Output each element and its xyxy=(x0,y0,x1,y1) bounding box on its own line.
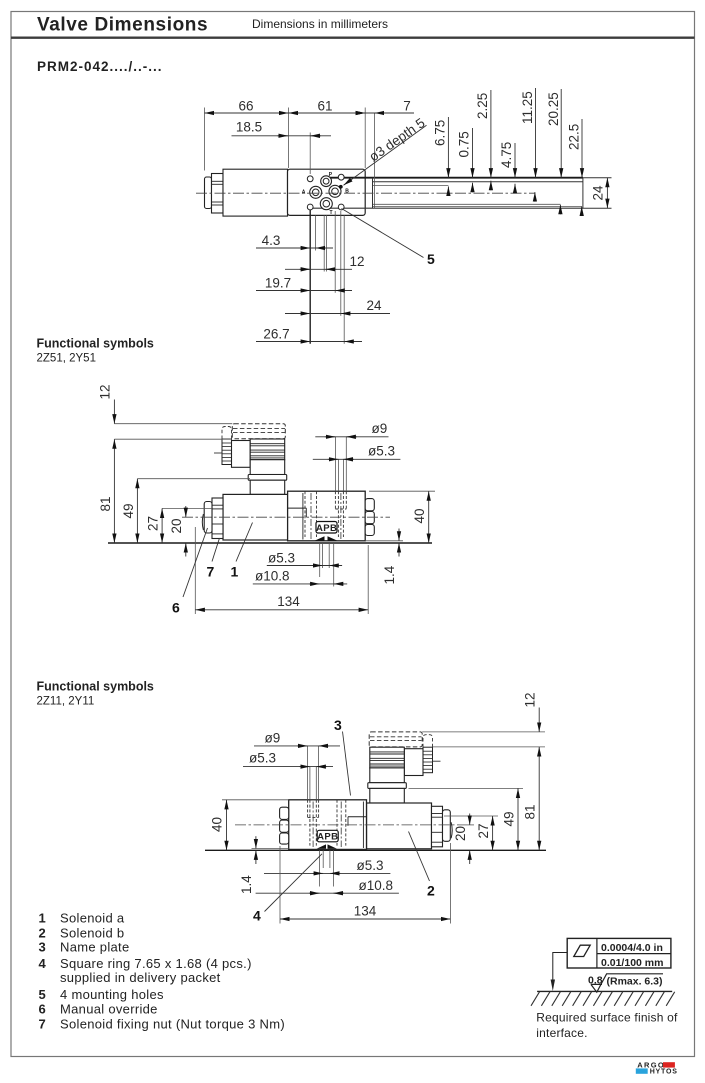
svg-text:supplied in delivery packet: supplied in delivery packet xyxy=(60,970,221,985)
svg-text:B: B xyxy=(345,189,349,195)
svg-text:5: 5 xyxy=(39,987,47,1002)
svg-text:12: 12 xyxy=(349,254,364,269)
svg-text:PRM2-042..../..-...: PRM2-042..../..-... xyxy=(37,59,163,74)
svg-text:Solenoid fixing nut (Nut torqu: Solenoid fixing nut (Nut torque 3 Nm) xyxy=(60,1017,285,1032)
svg-text:2: 2 xyxy=(427,883,435,899)
svg-text:ø3 depth 5: ø3 depth 5 xyxy=(366,115,427,164)
svg-text:20.25: 20.25 xyxy=(546,92,561,126)
svg-text:2Z11, 2Y11: 2Z11, 2Y11 xyxy=(37,696,95,708)
svg-text:1.4: 1.4 xyxy=(382,565,397,584)
svg-text:49: 49 xyxy=(502,811,517,826)
svg-text:12: 12 xyxy=(523,692,538,707)
svg-text:26.7: 26.7 xyxy=(263,327,289,342)
svg-text:1.4: 1.4 xyxy=(239,875,254,894)
svg-text:49: 49 xyxy=(121,503,136,518)
svg-text:1: 1 xyxy=(39,911,47,926)
svg-text:40: 40 xyxy=(412,508,427,523)
svg-text:27: 27 xyxy=(146,516,161,531)
svg-text:Name plate: Name plate xyxy=(60,940,129,955)
svg-text:HYTOS: HYTOS xyxy=(650,1069,678,1076)
svg-text:7: 7 xyxy=(207,564,215,580)
svg-text:Dimensions in millimeters: Dimensions in millimeters xyxy=(252,17,388,31)
svg-text:T: T xyxy=(330,210,333,216)
svg-text:24: 24 xyxy=(591,185,606,201)
svg-text:27: 27 xyxy=(476,823,491,838)
svg-text:0.75: 0.75 xyxy=(457,131,472,157)
svg-text:2.25: 2.25 xyxy=(475,93,490,119)
svg-text:Valve Dimensions: Valve Dimensions xyxy=(37,15,208,36)
svg-text:ø5.3: ø5.3 xyxy=(249,751,276,766)
svg-text:5: 5 xyxy=(427,251,435,267)
svg-text:6.75: 6.75 xyxy=(433,120,448,146)
svg-text:4 mounting holes: 4 mounting holes xyxy=(60,987,164,1002)
svg-text:6: 6 xyxy=(172,600,180,616)
svg-text:134: 134 xyxy=(277,594,300,609)
svg-text:(Rmax. 6.3): (Rmax. 6.3) xyxy=(607,976,663,988)
svg-text:ø5.3: ø5.3 xyxy=(368,444,395,459)
svg-text:134: 134 xyxy=(354,904,377,919)
svg-text:18.5: 18.5 xyxy=(236,120,262,135)
svg-text:APB: APB xyxy=(316,523,337,534)
svg-text:Square ring 7.65 x 1.68 (4 pcs: Square ring 7.65 x 1.68 (4 pcs.) xyxy=(60,956,252,971)
svg-text:APB: APB xyxy=(317,832,338,843)
svg-text:40: 40 xyxy=(210,817,225,832)
svg-text:ø9: ø9 xyxy=(265,731,281,746)
svg-text:1: 1 xyxy=(231,564,239,580)
svg-text:4: 4 xyxy=(39,956,47,971)
svg-text:ø10.8: ø10.8 xyxy=(255,569,290,584)
svg-text:24: 24 xyxy=(366,298,382,313)
svg-text:Manual override: Manual override xyxy=(60,1002,158,1017)
svg-text:0.01/100 mm: 0.01/100 mm xyxy=(601,957,663,969)
svg-text:ø5.3: ø5.3 xyxy=(357,858,384,873)
svg-text:81: 81 xyxy=(98,496,113,511)
svg-text:4.3: 4.3 xyxy=(262,233,281,248)
svg-text:ø10.8: ø10.8 xyxy=(359,878,394,893)
svg-text:Required surface finish of: Required surface finish of xyxy=(536,1011,678,1025)
svg-text:ø9: ø9 xyxy=(372,421,388,436)
svg-text:7: 7 xyxy=(39,1017,47,1032)
svg-text:A: A xyxy=(302,190,306,196)
svg-text:20: 20 xyxy=(169,518,184,533)
svg-text:81: 81 xyxy=(523,804,538,819)
svg-text:7: 7 xyxy=(403,99,411,114)
svg-text:2: 2 xyxy=(39,925,47,940)
svg-text:3: 3 xyxy=(39,940,47,955)
svg-text:Solenoid a: Solenoid a xyxy=(60,911,125,926)
svg-text:4: 4 xyxy=(253,908,261,924)
svg-text:12: 12 xyxy=(98,384,113,399)
svg-text:ø5.3: ø5.3 xyxy=(268,551,295,566)
svg-text:2Z51, 2Y51: 2Z51, 2Y51 xyxy=(37,353,96,365)
svg-text:22.5: 22.5 xyxy=(567,124,582,150)
svg-text:19.7: 19.7 xyxy=(265,276,291,291)
svg-text:interface.: interface. xyxy=(536,1026,587,1040)
svg-text:61: 61 xyxy=(317,99,332,114)
svg-text:Functional symbols: Functional symbols xyxy=(37,680,154,694)
svg-text:6: 6 xyxy=(39,1002,47,1017)
svg-text:0.0004/4.0 in: 0.0004/4.0 in xyxy=(601,942,663,954)
svg-text:66: 66 xyxy=(238,99,253,114)
svg-text:4.75: 4.75 xyxy=(499,142,514,168)
svg-text:3: 3 xyxy=(334,717,342,733)
svg-text:Functional symbols: Functional symbols xyxy=(37,337,154,351)
svg-text:20: 20 xyxy=(453,826,468,841)
svg-text:11.25: 11.25 xyxy=(520,91,535,124)
svg-text:Solenoid b: Solenoid b xyxy=(60,925,124,940)
